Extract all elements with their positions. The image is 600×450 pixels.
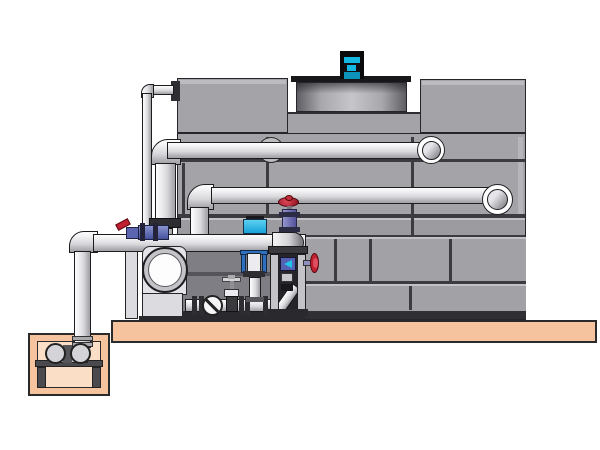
column-gauge-box: [281, 273, 293, 282]
brick-highlight: [304, 284, 526, 286]
brick-panels: [304, 237, 526, 311]
upper-inlet-pipe: [167, 142, 433, 159]
riser-pipe: [155, 163, 176, 220]
makeup-line-vertical: [142, 93, 152, 237]
fan-recess-band: [288, 112, 420, 133]
gate-valve-body: [226, 296, 238, 312]
brick-seam-vertical: [369, 239, 372, 281]
handwheel-hub: [285, 195, 293, 201]
pump-inlet: [148, 253, 182, 287]
cooling-tower-system-diagram: [0, 0, 600, 450]
sump-riser-pipe: [74, 251, 91, 348]
brick-seam-vertical: [449, 239, 452, 281]
brick-seam-vertical: [334, 239, 337, 281]
lower-inlet-cap: [487, 189, 508, 210]
makeup-line-horizontal: [151, 85, 174, 95]
column-post: [270, 254, 279, 313]
pump-stand-leg: [37, 367, 46, 388]
pump-foot: [139, 316, 189, 321]
platform: [111, 320, 597, 343]
gate-valve-hub: [228, 275, 235, 279]
strainer-cylinder: [247, 253, 261, 272]
brick-highlight: [304, 237, 526, 239]
box-top-highlight: [422, 81, 524, 85]
pipe-flange: [192, 296, 197, 315]
panel-seam: [178, 159, 525, 162]
fan-motor-post: [360, 52, 364, 79]
column-dark-box: [281, 284, 293, 291]
tank-top-left-box: [177, 78, 288, 133]
tank-top-right-box: [420, 79, 526, 133]
upper-inlet-cap: [422, 141, 441, 160]
valve-flange: [279, 212, 300, 217]
panel-seam-vertical: [182, 163, 185, 215]
lower-inlet-pipe: [211, 187, 492, 204]
strainer-collar: [246, 297, 264, 302]
fan-motor-window: [347, 65, 356, 72]
pump-stand-leg: [92, 367, 101, 388]
fan-cowl: [296, 82, 407, 112]
column-top-bar: [268, 246, 308, 254]
pipe-saddle-sensor: [243, 219, 267, 234]
dosing-pump-ring: [140, 223, 145, 241]
fan-motor-post: [340, 52, 344, 79]
fan-motor-base: [343, 72, 361, 79]
skid-side-panel: [125, 243, 138, 319]
sump-pump-end: [70, 343, 91, 364]
column-bottom-bar: [268, 309, 308, 316]
dosing-pump-ring: [153, 223, 158, 241]
sump-pump-end: [45, 343, 66, 364]
pipe-collar: [72, 336, 93, 341]
pipe-flange: [239, 296, 244, 315]
box-top-highlight: [179, 80, 286, 84]
valve-flange: [279, 227, 300, 232]
side-handwheel-hub: [313, 258, 318, 268]
brick-seam-vertical: [409, 286, 412, 310]
